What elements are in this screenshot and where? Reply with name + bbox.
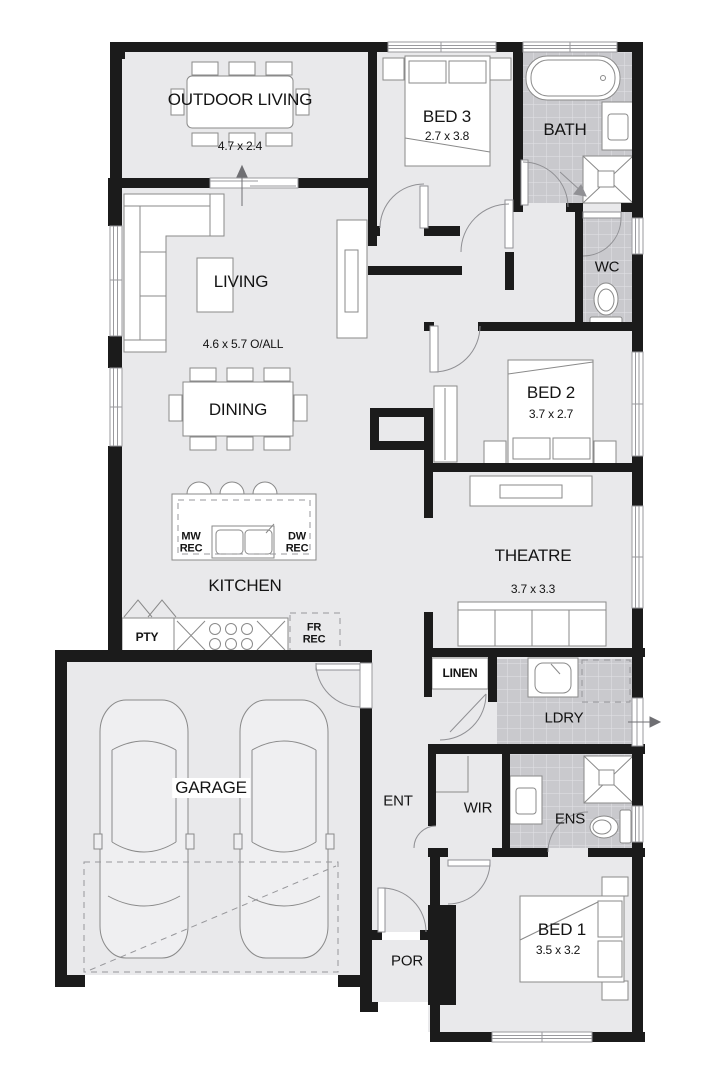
window-bed1-bottom	[492, 1032, 592, 1042]
label-theatre: THEATRE	[495, 546, 572, 566]
label-fr-rec: FRREC	[303, 622, 326, 645]
label-pty: PTY	[136, 630, 159, 644]
window-bath-top	[523, 42, 617, 52]
label-ldry: LDRY	[545, 710, 584, 727]
label-bath: BATH	[543, 120, 586, 140]
label-wir: WIR	[464, 800, 493, 817]
dim-outdoor-living: 4.7 x 2.4	[218, 139, 262, 153]
window-wc	[632, 218, 643, 254]
label-garage: GARAGE	[172, 778, 250, 798]
label-linen: LINEN	[442, 666, 477, 680]
window-living-left-1	[110, 226, 122, 336]
label-dw-rec: DWREC	[286, 531, 309, 554]
label-ens: ENS	[555, 811, 585, 828]
label-bed3: BED 3	[423, 107, 471, 127]
label-bed1: BED 1	[538, 920, 586, 940]
car-left	[94, 700, 194, 958]
label-outdoor-living: OUTDOOR LIVING	[168, 90, 313, 110]
dim-living: 4.6 x 5.7 O/ALL	[203, 337, 283, 351]
dim-bed1: 3.5 x 3.2	[536, 943, 580, 957]
window-bed3-top	[388, 42, 496, 52]
living-tv-unit	[337, 220, 367, 338]
outdoor-sliding-door	[210, 178, 298, 188]
label-mw-rec: MWREC	[180, 531, 203, 554]
bathtub	[526, 56, 620, 100]
bath-vanity	[602, 102, 634, 150]
label-living: LIVING	[214, 272, 269, 292]
dim-bed2: 3.7 x 2.7	[529, 407, 573, 421]
plan-graphics	[0, 0, 707, 1088]
label-dining: DINING	[209, 400, 267, 420]
laundry-trough	[528, 658, 578, 697]
window-theatre	[632, 506, 643, 608]
label-por: POR	[391, 953, 423, 970]
label-bed2: BED 2	[527, 383, 575, 403]
bath-shower	[583, 156, 633, 203]
label-wc: WC	[595, 259, 620, 276]
label-kitchen: KITCHEN	[208, 576, 281, 596]
window-bed2	[632, 352, 643, 456]
plan-marker	[114, 48, 125, 59]
garage-door-opening	[360, 663, 372, 708]
floor-plan: OUTDOOR LIVING 4.7 x 2.4 BED 3 2.7 x 3.8…	[0, 0, 707, 1088]
window-living-left-2	[110, 368, 122, 446]
label-ent: ENT	[383, 793, 412, 810]
window-ens	[632, 806, 643, 842]
dim-bed3: 2.7 x 3.8	[425, 129, 469, 143]
dim-theatre: 3.7 x 3.3	[511, 582, 555, 596]
car-right	[234, 700, 334, 958]
